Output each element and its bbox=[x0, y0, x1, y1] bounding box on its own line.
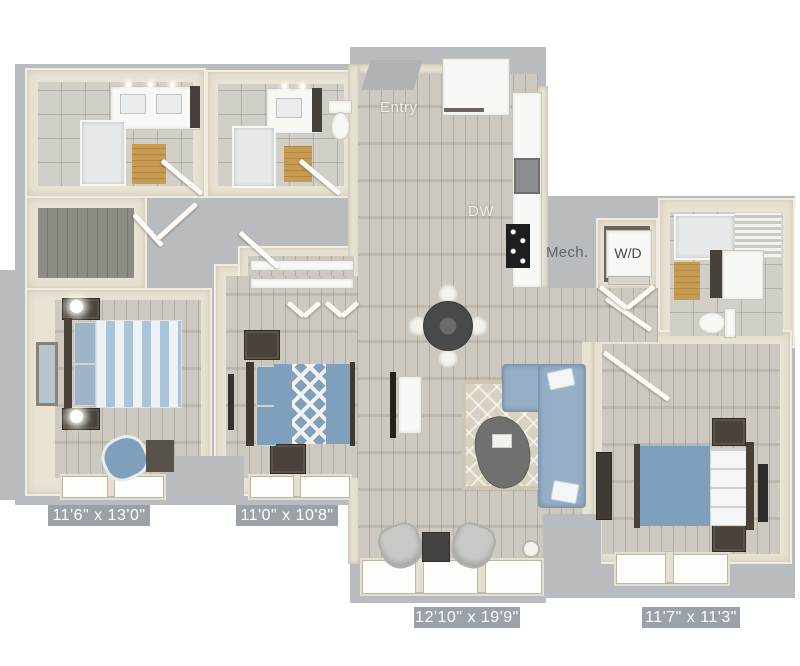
bathroom-2-light-2 bbox=[300, 84, 305, 89]
floor-lamp bbox=[522, 540, 540, 558]
bedroom-3-wall-art bbox=[758, 464, 768, 522]
bathroom-1-sink-left bbox=[120, 94, 146, 114]
bathroom-1-light-3 bbox=[170, 82, 175, 87]
bedroom-1-headboard bbox=[64, 318, 72, 408]
closet-2-shelf-bottom bbox=[250, 278, 354, 289]
floor-plan: Entry DW Mech. W/D 11'6" x 13'0" 11'0" x… bbox=[0, 0, 800, 666]
bathroom-1-light-2 bbox=[148, 82, 153, 87]
closet-2-shelf-top bbox=[250, 260, 354, 271]
bathroom-2-sink bbox=[276, 98, 302, 118]
mechanical-label: Mech. bbox=[546, 244, 588, 261]
dining-chair-bottom bbox=[438, 348, 458, 368]
bedroom-2-nightstand-bottom bbox=[270, 444, 306, 474]
washer-dryer-label: W/D bbox=[606, 230, 650, 276]
bedroom-1-bed-duvet bbox=[96, 320, 182, 408]
bedroom-3-nightstand-top bbox=[712, 418, 746, 446]
bedroom-2-headboard bbox=[246, 362, 254, 446]
bedroom-2-pillow-bottom bbox=[256, 406, 276, 446]
bedroom-3-bed-duvet bbox=[640, 446, 710, 526]
bedroom-3-dimension-label: 11'7" x 11'3" bbox=[642, 607, 740, 628]
bathroom-3-toilet-bowl bbox=[698, 312, 726, 334]
bathroom-3-bath-mat bbox=[674, 262, 700, 300]
bathroom-3-vanity-cabinet bbox=[710, 250, 722, 298]
bathroom-1-vanity-cabinet bbox=[190, 86, 200, 128]
washer-dryer-unit-base bbox=[608, 276, 650, 285]
bedroom-3-window-mullion bbox=[666, 552, 673, 582]
bedroom-2-pillow-top bbox=[256, 366, 276, 406]
bedroom-1-mirror bbox=[36, 342, 58, 406]
bathroom-1-sink-right bbox=[156, 94, 182, 114]
bedroom-3-dresser bbox=[596, 452, 612, 520]
dining-table bbox=[423, 301, 473, 351]
slab-left-edge bbox=[0, 270, 15, 500]
bedroom-2-wall-art bbox=[228, 374, 234, 430]
bathroom-1-light-1 bbox=[126, 82, 131, 87]
bedroom-3-headboard bbox=[746, 442, 754, 530]
dishwasher-label: DW bbox=[468, 203, 494, 220]
bedroom-2-window-mullion bbox=[294, 474, 300, 496]
slab-notch-living-corner bbox=[543, 514, 601, 574]
closet-1-floor bbox=[38, 208, 134, 278]
sofa-pillow-bottom bbox=[550, 480, 579, 504]
bedroom-2-footboard bbox=[350, 362, 355, 446]
bedroom-1-lamp-top bbox=[70, 300, 83, 313]
bedroom-2-bed-runner bbox=[292, 364, 326, 444]
entry-closet-door-edge bbox=[444, 108, 484, 112]
bathroom-1-shower bbox=[80, 120, 126, 186]
bedroom-1-lamp-bottom bbox=[70, 410, 83, 423]
bathroom-1-bath-mat bbox=[132, 144, 166, 184]
coffee-table-tray bbox=[492, 434, 512, 448]
bathroom-3-vanity bbox=[722, 250, 764, 300]
bedroom-1-floor-mat bbox=[146, 440, 174, 472]
bedroom-2-window bbox=[248, 474, 352, 500]
bedroom-1-dimension-label: 11'6" x 13'0" bbox=[48, 505, 150, 526]
tv-screen bbox=[390, 372, 396, 438]
bedroom-3-pillows bbox=[710, 448, 748, 526]
bedroom-1-pillow-top bbox=[74, 322, 96, 364]
side-table bbox=[422, 532, 450, 562]
living-room-dimension-label: 12'10" x 19'9" bbox=[414, 607, 520, 628]
bedroom-1-pillow-bottom bbox=[74, 364, 96, 406]
bathroom-2-toilet-bowl bbox=[331, 112, 350, 140]
bathroom-2-light-1 bbox=[282, 84, 287, 89]
bedroom-2-nightstand-top bbox=[244, 330, 280, 360]
living-room-window-mullion-1 bbox=[416, 558, 423, 592]
entry-door-recess bbox=[361, 60, 423, 90]
bathroom-2-vanity-cabinet bbox=[312, 88, 322, 132]
bedroom-3-nightstand-bottom bbox=[712, 524, 746, 552]
tv-console bbox=[398, 376, 422, 434]
bathroom-3-toilet-tank bbox=[724, 308, 736, 338]
kitchen-cooktop bbox=[506, 224, 530, 268]
bedroom-2-dimension-label: 11'0" x 10'8" bbox=[236, 505, 338, 526]
entry-label: Entry bbox=[380, 99, 418, 116]
kitchen-sink bbox=[514, 158, 540, 194]
bathroom-2-shower bbox=[232, 126, 276, 188]
